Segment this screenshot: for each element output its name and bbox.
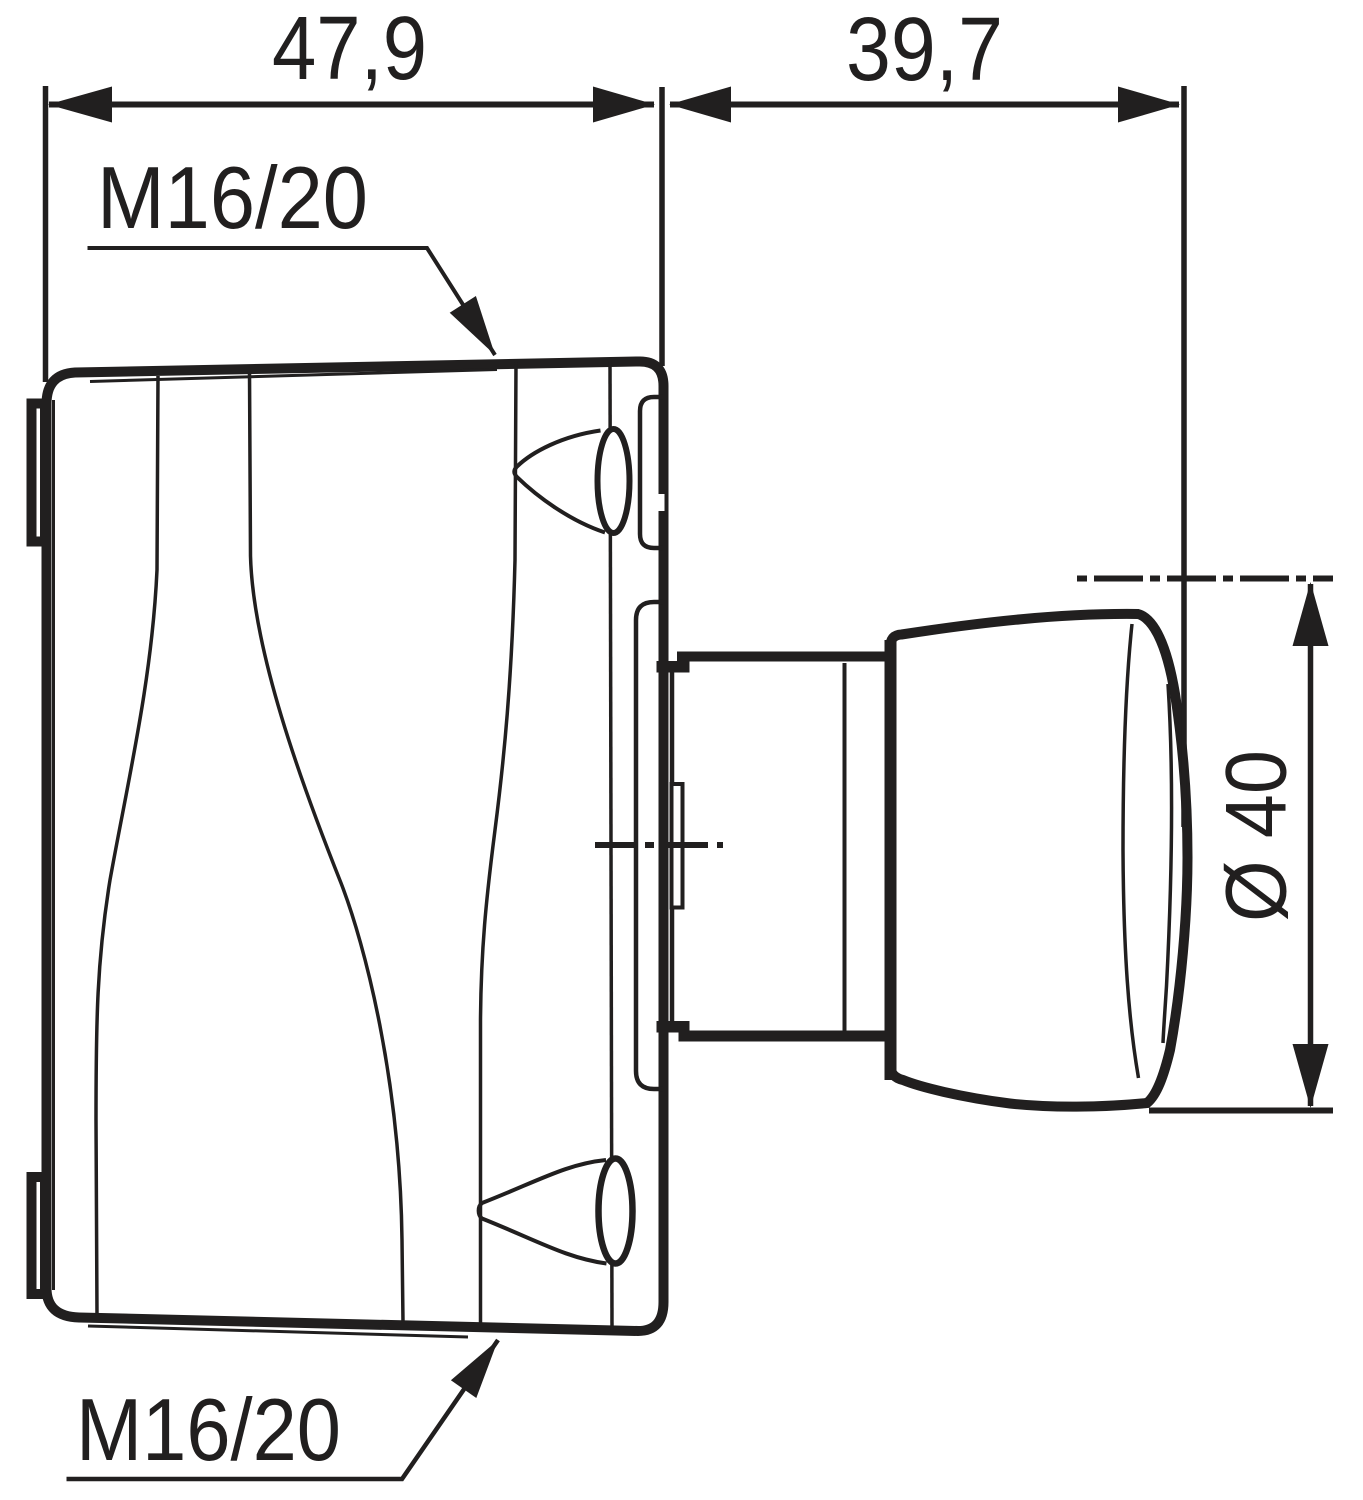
svg-text:47,9: 47,9 (272, 0, 427, 99)
svg-text:39,7: 39,7 (846, 0, 1003, 100)
svg-text:M16/20: M16/20 (97, 148, 368, 247)
svg-text:Ø 40: Ø 40 (1209, 750, 1305, 922)
svg-text:M16/20: M16/20 (76, 1380, 341, 1479)
